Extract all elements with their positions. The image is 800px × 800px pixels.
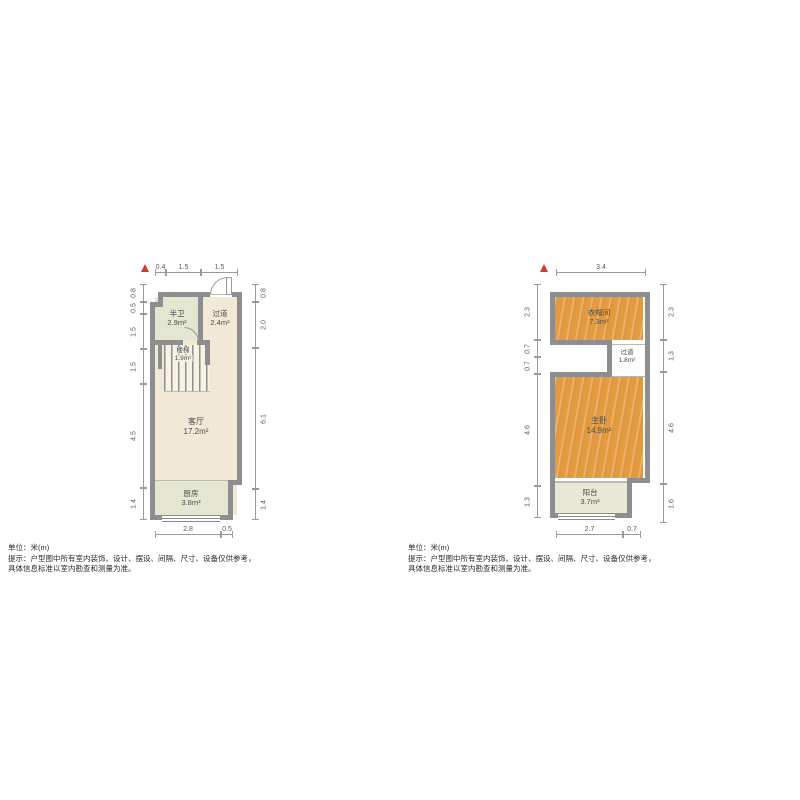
wall bbox=[550, 340, 612, 345]
dim-top: 0.4 bbox=[155, 262, 166, 276]
room-hallway-label: 过道1.8m² bbox=[619, 349, 636, 365]
dim-bottom: 0.5 bbox=[221, 524, 233, 538]
room-stairs-label: 楼梯1.9m² bbox=[174, 347, 193, 363]
dim-right: 1.4 bbox=[248, 489, 262, 520]
dim-right: 1.3 bbox=[656, 340, 670, 372]
balcony-window bbox=[558, 513, 615, 520]
wall bbox=[550, 372, 555, 518]
tip-line-2: 具体信息标准以室内勘查和测量为准。 bbox=[408, 564, 708, 575]
room-cloakroom-label: 衣帽间7.3m² bbox=[588, 308, 611, 326]
dim-bottom: 2.7 bbox=[556, 524, 623, 538]
disclaimer-right: 单位：米(m) 提示：户型图中所有室内装饰、设计、摆设、间隔、尺寸、设备仅供参考… bbox=[408, 543, 708, 575]
dim-bottom: 2.8 bbox=[155, 524, 221, 538]
dim-top: 1.5 bbox=[166, 262, 201, 276]
dim-left: 0.5 bbox=[136, 302, 150, 314]
dim-bottom: 0.7 bbox=[623, 524, 641, 538]
dim-left: 0.7 bbox=[530, 340, 544, 357]
wall bbox=[627, 483, 632, 513]
dim-left: 4.5 bbox=[136, 384, 150, 488]
room-kitchen-label: 厨房3.8m² bbox=[181, 489, 200, 507]
wall bbox=[237, 292, 242, 485]
dim-left: 4.6 bbox=[530, 374, 544, 486]
tip-line-1: 提示：户型图中所有室内装饰、设计、摆设、间隔、尺寸、设备仅供参考， bbox=[8, 554, 308, 565]
dim-left: 0.8 bbox=[136, 284, 150, 302]
dim-top: 1.5 bbox=[201, 262, 238, 276]
room-halfbath-label: 半卫2.9m² bbox=[167, 309, 186, 327]
wall bbox=[550, 372, 612, 377]
wall bbox=[607, 340, 612, 377]
room-living-label: 客厅17.2m² bbox=[184, 417, 209, 437]
wall bbox=[158, 345, 162, 369]
room-hallway-label: 过道2.4m² bbox=[210, 309, 229, 327]
tip-line-2: 具体信息标准以室内勘查和测量为准。 bbox=[8, 564, 308, 575]
hallway-opening bbox=[612, 376, 645, 377]
kitchen-window bbox=[162, 515, 220, 522]
north-arrow-icon bbox=[540, 264, 548, 272]
north-arrow-icon bbox=[141, 264, 149, 272]
tip-line-1: 提示：户型图中所有室内装饰、设计、摆设、间隔、尺寸、设备仅供参考， bbox=[408, 554, 708, 565]
dim-right: 1.6 bbox=[656, 484, 670, 523]
dim-left: 1.5 bbox=[136, 349, 150, 384]
disclaimer-left: 单位：米(m) 提示：户型图中所有室内装饰、设计、摆设、间隔、尺寸、设备仅供参考… bbox=[8, 543, 308, 575]
wall bbox=[550, 297, 555, 340]
dim-right: 4.6 bbox=[656, 372, 670, 484]
entry-door-arc bbox=[210, 277, 228, 295]
dim-left: 1.5 bbox=[136, 314, 150, 349]
wall bbox=[205, 345, 210, 365]
room-balcony-label: 阳台3.7m² bbox=[580, 488, 599, 506]
dim-left: 2.3 bbox=[530, 284, 544, 340]
wall bbox=[198, 297, 203, 340]
dim-top: 3.4 bbox=[556, 262, 646, 276]
unit-note: 单位：米(m) bbox=[8, 543, 308, 554]
hallway-opening bbox=[612, 344, 645, 345]
dim-right: 2.3 bbox=[656, 284, 670, 340]
wall bbox=[645, 297, 650, 483]
dim-right: 0.8 bbox=[248, 284, 262, 302]
dim-left: 1.4 bbox=[136, 488, 150, 520]
wall bbox=[550, 292, 650, 297]
dim-left: 0.7 bbox=[530, 357, 544, 374]
room-master-label: 主卧14.9m² bbox=[587, 416, 612, 436]
dim-right: 6.1 bbox=[248, 348, 262, 489]
dim-left: 1.3 bbox=[530, 486, 544, 518]
unit-note: 单位：米(m) bbox=[408, 543, 708, 554]
wall bbox=[150, 302, 155, 520]
dim-right: 2.0 bbox=[248, 302, 262, 348]
